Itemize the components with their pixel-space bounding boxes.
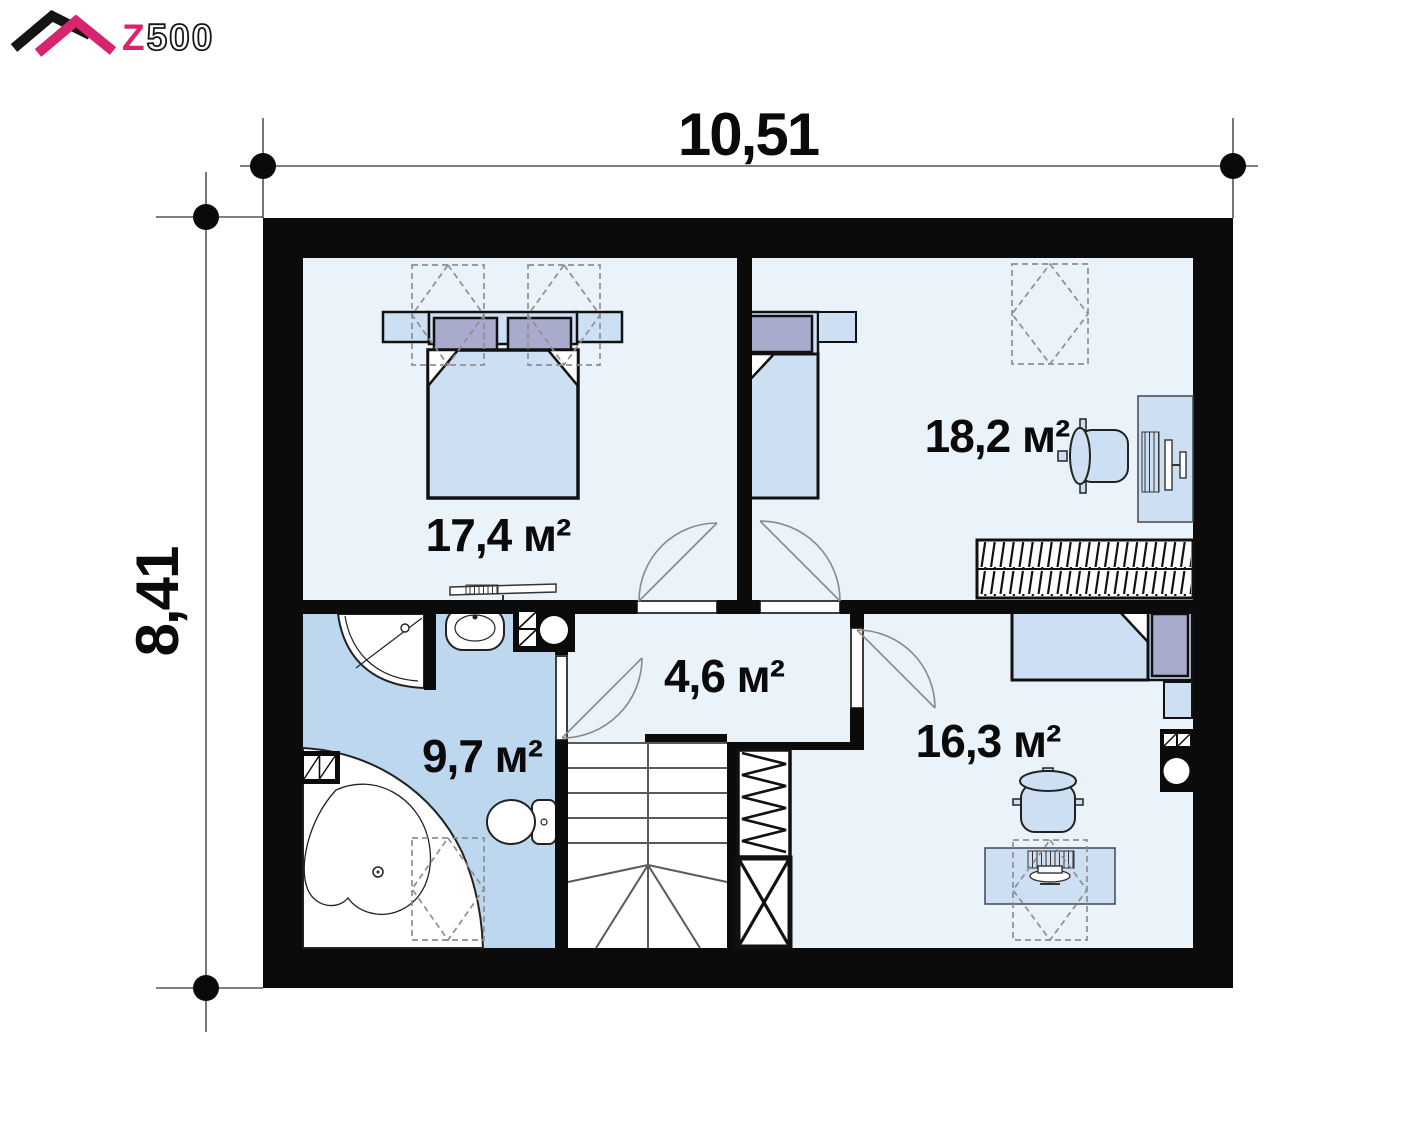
- monitor: [1165, 440, 1172, 490]
- desk-bedroom-3: [985, 848, 1115, 904]
- shaft-void: [738, 858, 790, 947]
- toilet-bowl: [487, 800, 535, 844]
- room-label-bedroom-2: 18,2 м²: [925, 410, 1070, 462]
- stair-guard: [645, 734, 727, 742]
- bed-mattress: [746, 354, 818, 498]
- bed-mattress: [428, 350, 578, 498]
- dimension-height-label: 8,41: [124, 547, 191, 656]
- monitor-base: [1180, 452, 1186, 478]
- bedside-shelf: [1164, 682, 1192, 718]
- shower-wall: [424, 600, 436, 690]
- chair-backrest: [1020, 771, 1076, 791]
- room-label-bedroom-1: 17,4 м²: [426, 509, 571, 561]
- logo-digits: 500: [147, 17, 215, 58]
- pillow: [1152, 614, 1188, 676]
- z500-logo: Z500: [14, 16, 214, 58]
- chimney-hall: [513, 607, 575, 652]
- dim-endpoint: [193, 204, 219, 230]
- sink: [446, 608, 504, 650]
- floor-plan-svg: Z500 10,51 8,41: [0, 0, 1403, 1146]
- wardrobe: [977, 540, 1193, 598]
- keyboard: [1142, 432, 1159, 492]
- room-label-hallway: 4,6 м²: [664, 650, 785, 702]
- office-chair-bedroom-3: [1013, 768, 1083, 832]
- radiator-bathroom: [299, 751, 340, 784]
- dim-endpoint: [193, 975, 219, 1001]
- pillow: [750, 316, 812, 352]
- dim-endpoint: [1220, 153, 1246, 179]
- shower-drain: [401, 624, 409, 632]
- dimension-width-label: 10,51: [678, 101, 819, 168]
- floor-plan: 17,4 м² 18,2 м² 4,6 м² 9,7 м² 16,3 м²: [263, 218, 1233, 988]
- room-label-bathroom: 9,7 м²: [422, 730, 543, 782]
- chimney-bedroom-3: [1160, 729, 1193, 792]
- flue: [540, 616, 568, 644]
- bedside-shelf: [818, 312, 856, 342]
- dim-endpoint: [250, 153, 276, 179]
- monitor: [1038, 866, 1062, 873]
- toilet: [487, 800, 556, 844]
- logo-roof-pink: [38, 21, 113, 53]
- logo-wordmark: Z500: [122, 17, 214, 58]
- desk-bedroom-2: [1138, 396, 1193, 522]
- stair-railing: [738, 750, 790, 857]
- floor-plan-page: Z500 10,51 8,41: [0, 0, 1403, 1146]
- room-label-bedroom-3: 16,3 м²: [916, 715, 1061, 767]
- logo-letter-z: Z: [122, 17, 147, 58]
- bed-mattress: [1012, 612, 1148, 680]
- nightstand-left: [383, 312, 429, 342]
- flue: [1164, 758, 1190, 784]
- chair-backrest: [1070, 428, 1090, 484]
